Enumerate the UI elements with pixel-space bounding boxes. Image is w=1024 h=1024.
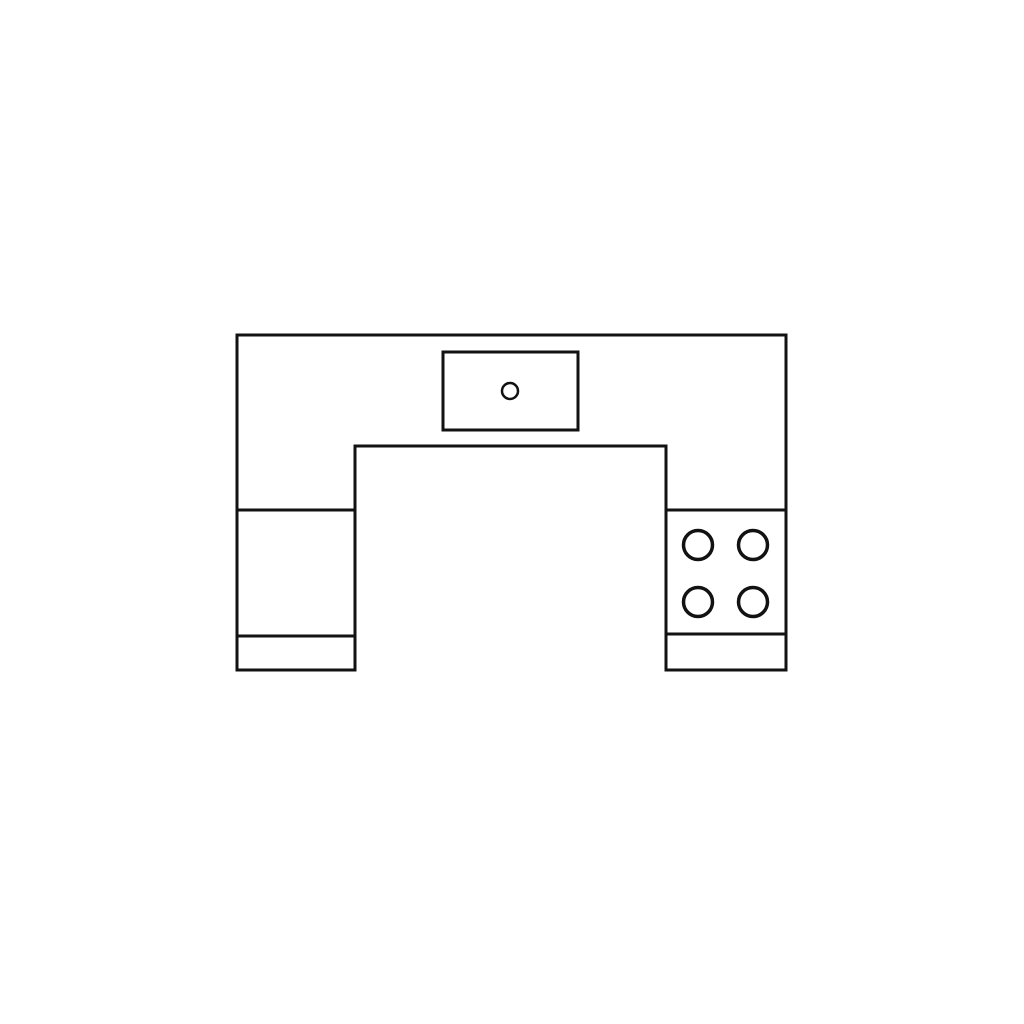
sink-basin: [443, 352, 578, 430]
kitchen-floor-plan-diagram: [0, 0, 1024, 1024]
burner-4: [739, 588, 768, 617]
sink-drain: [502, 383, 518, 399]
burner-3: [684, 588, 713, 617]
burner-1: [684, 531, 713, 560]
kitchen-floor-plan-page: [0, 0, 1024, 1024]
counter-outline: [237, 335, 786, 670]
cooktop: [684, 531, 768, 617]
sink: [443, 352, 578, 430]
burner-2: [739, 531, 768, 560]
